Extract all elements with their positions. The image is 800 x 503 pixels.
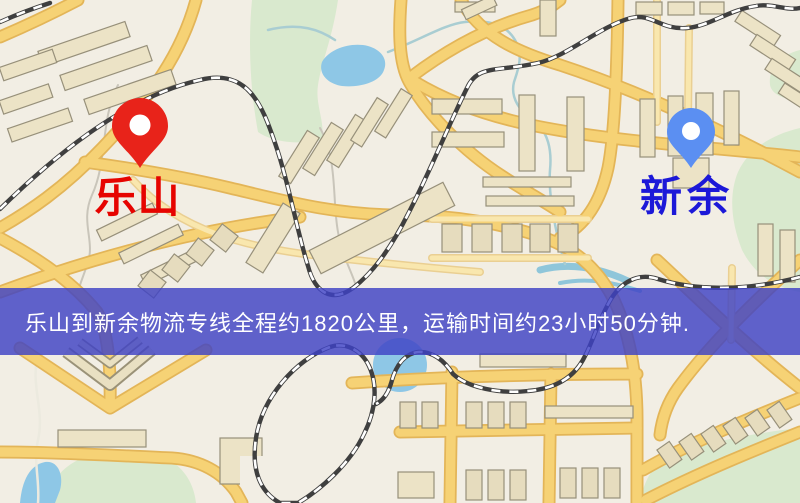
map-canvas[interactable] [0,0,800,503]
destination-label: 新余 [632,176,742,218]
map-view[interactable]: 乐山 新余 乐山到新余物流专线全程约1820公里，运输时间约23小时50分钟. [0,0,800,503]
destination-pin-hole [682,122,700,140]
origin-pin-hole [130,115,151,136]
route-info-banner: 乐山到新余物流专线全程约1820公里，运输时间约23小时50分钟. [0,288,800,355]
route-info-text: 乐山到新余物流专线全程约1820公里，运输时间约23小时50分钟. [0,306,690,338]
origin-label: 乐山 [85,177,190,219]
